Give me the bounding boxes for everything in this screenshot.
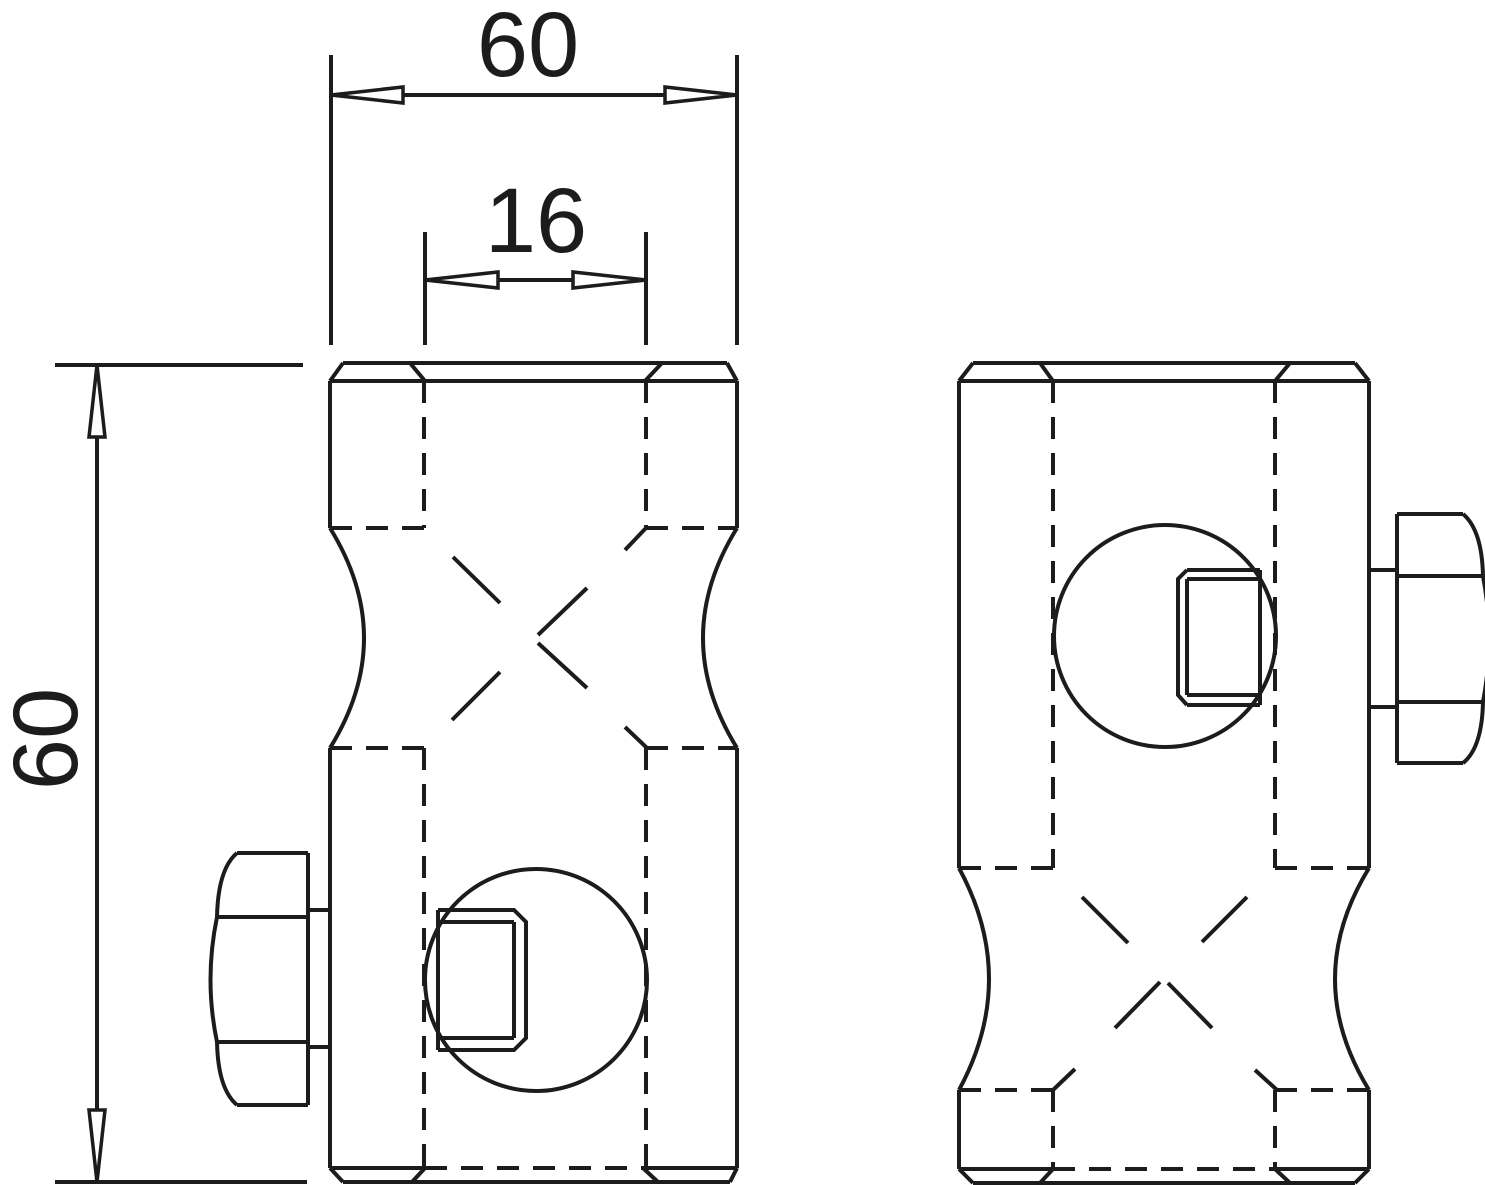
top-chamfer-band	[330, 363, 737, 381]
left-view	[211, 363, 738, 1182]
engineering-drawing-canvas: 60 16 60	[0, 0, 1485, 1185]
bottom-chamfer-band-right	[959, 1169, 1369, 1183]
dimension-label-top-width: 60	[477, 0, 579, 96]
technical-drawing-page: 60 16 60	[0, 0, 1485, 1185]
cross-mark-right	[1082, 897, 1247, 1028]
right-view	[959, 363, 1485, 1183]
cross-mark	[452, 557, 587, 720]
body-side-edges-right	[959, 381, 1369, 1169]
arrowhead-right-16	[573, 272, 646, 288]
bore-hidden-lines-left	[330, 381, 737, 1168]
hex-bolt-left	[211, 853, 331, 1105]
square-socket	[438, 910, 526, 1050]
arrowhead-right	[665, 87, 737, 103]
arrowhead-down	[89, 1110, 105, 1182]
clamp-boss-circle	[425, 869, 647, 1091]
arrowhead-up	[89, 365, 105, 437]
square-socket-right	[1178, 570, 1260, 705]
dimension-label-inner-width: 16	[485, 170, 587, 272]
bore-hidden-lines-right	[959, 381, 1369, 1169]
saddle-transition-edges-right	[1053, 1069, 1277, 1090]
arrowhead-left	[331, 87, 403, 103]
saddle-transition-edges	[625, 528, 647, 748]
arrowhead-left-16	[425, 272, 498, 288]
dimension-label-left-height: 60	[0, 688, 97, 790]
waist-saddle-arcs-right	[959, 868, 1369, 1090]
bottom-chamfer-band	[330, 1168, 737, 1182]
clamp-boss-circle-right	[1054, 525, 1276, 747]
hex-bolt-right	[1369, 514, 1485, 763]
waist-saddle-arcs	[330, 528, 737, 748]
right-view-hidden-lines	[959, 381, 1369, 1169]
body-side-edges	[330, 381, 737, 1168]
top-chamfer-band-right	[959, 363, 1369, 381]
left-view-hidden-lines	[330, 381, 737, 1168]
